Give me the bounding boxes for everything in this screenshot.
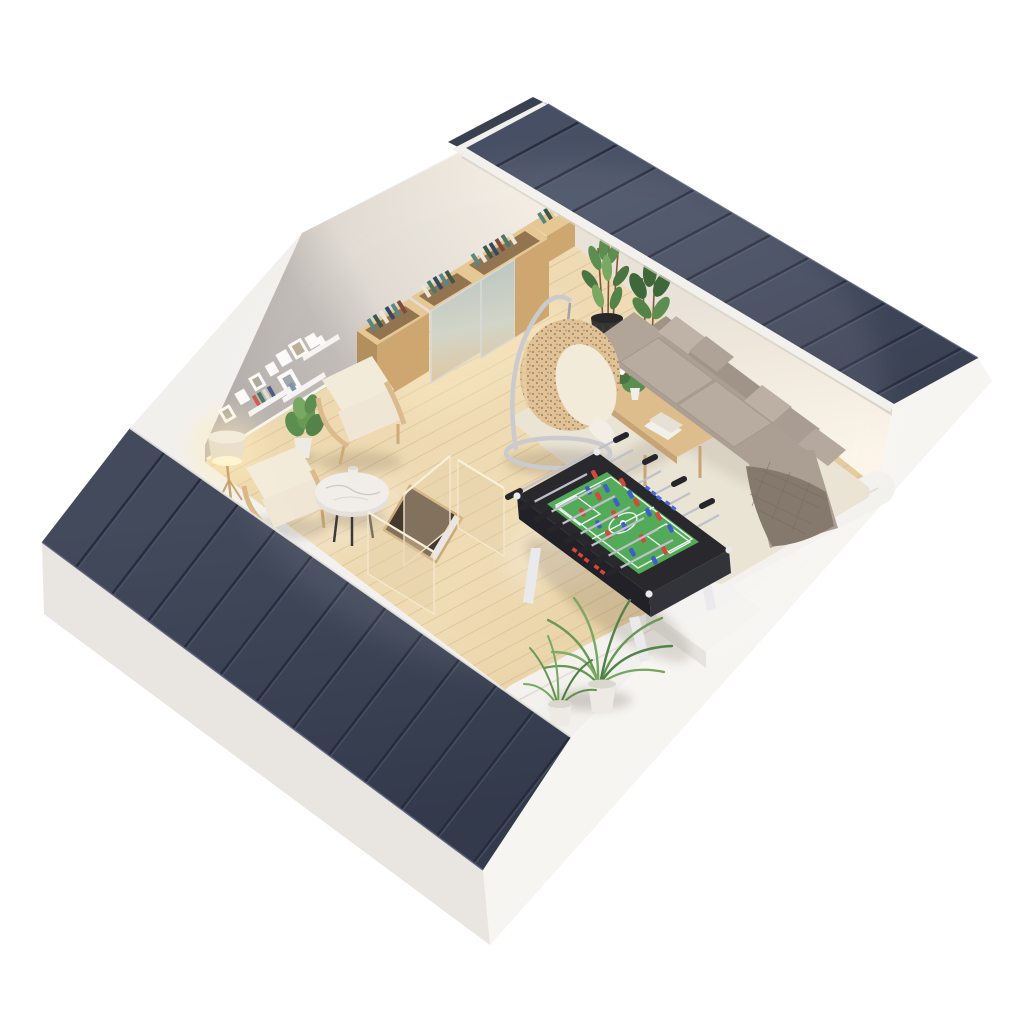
ambient-light [230, 160, 890, 680]
attic-render: 3D isometric cutaway render of an attic … [0, 0, 1024, 1024]
screenshot-canvas: 3D isometric cutaway render of an attic … [0, 0, 1024, 1024]
